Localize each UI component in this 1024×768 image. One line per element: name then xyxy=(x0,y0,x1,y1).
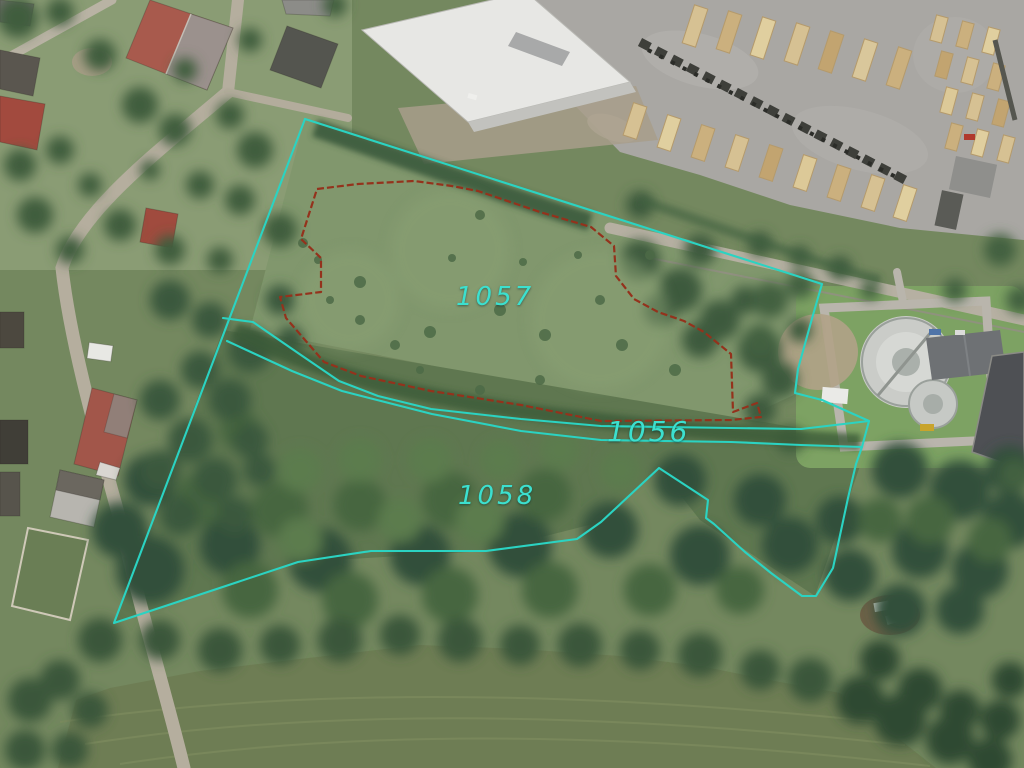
dark-roof-house-left xyxy=(0,50,40,96)
parcel-label-1056[interactable]: 1056 xyxy=(607,415,690,448)
red-machine xyxy=(964,134,975,140)
blue-car xyxy=(929,329,941,335)
parcel-label-1057[interactable]: 1057 xyxy=(456,282,534,312)
map-canvas[interactable]: 1057 1056 1058 xyxy=(0,0,1024,768)
white-trailer-village xyxy=(87,342,113,361)
yellow-machine xyxy=(920,424,934,431)
aerial-photo xyxy=(0,0,1024,768)
parcel-label-1058[interactable]: 1058 xyxy=(458,481,536,511)
red-roof-house-left xyxy=(0,96,45,150)
gray-car xyxy=(955,330,965,335)
